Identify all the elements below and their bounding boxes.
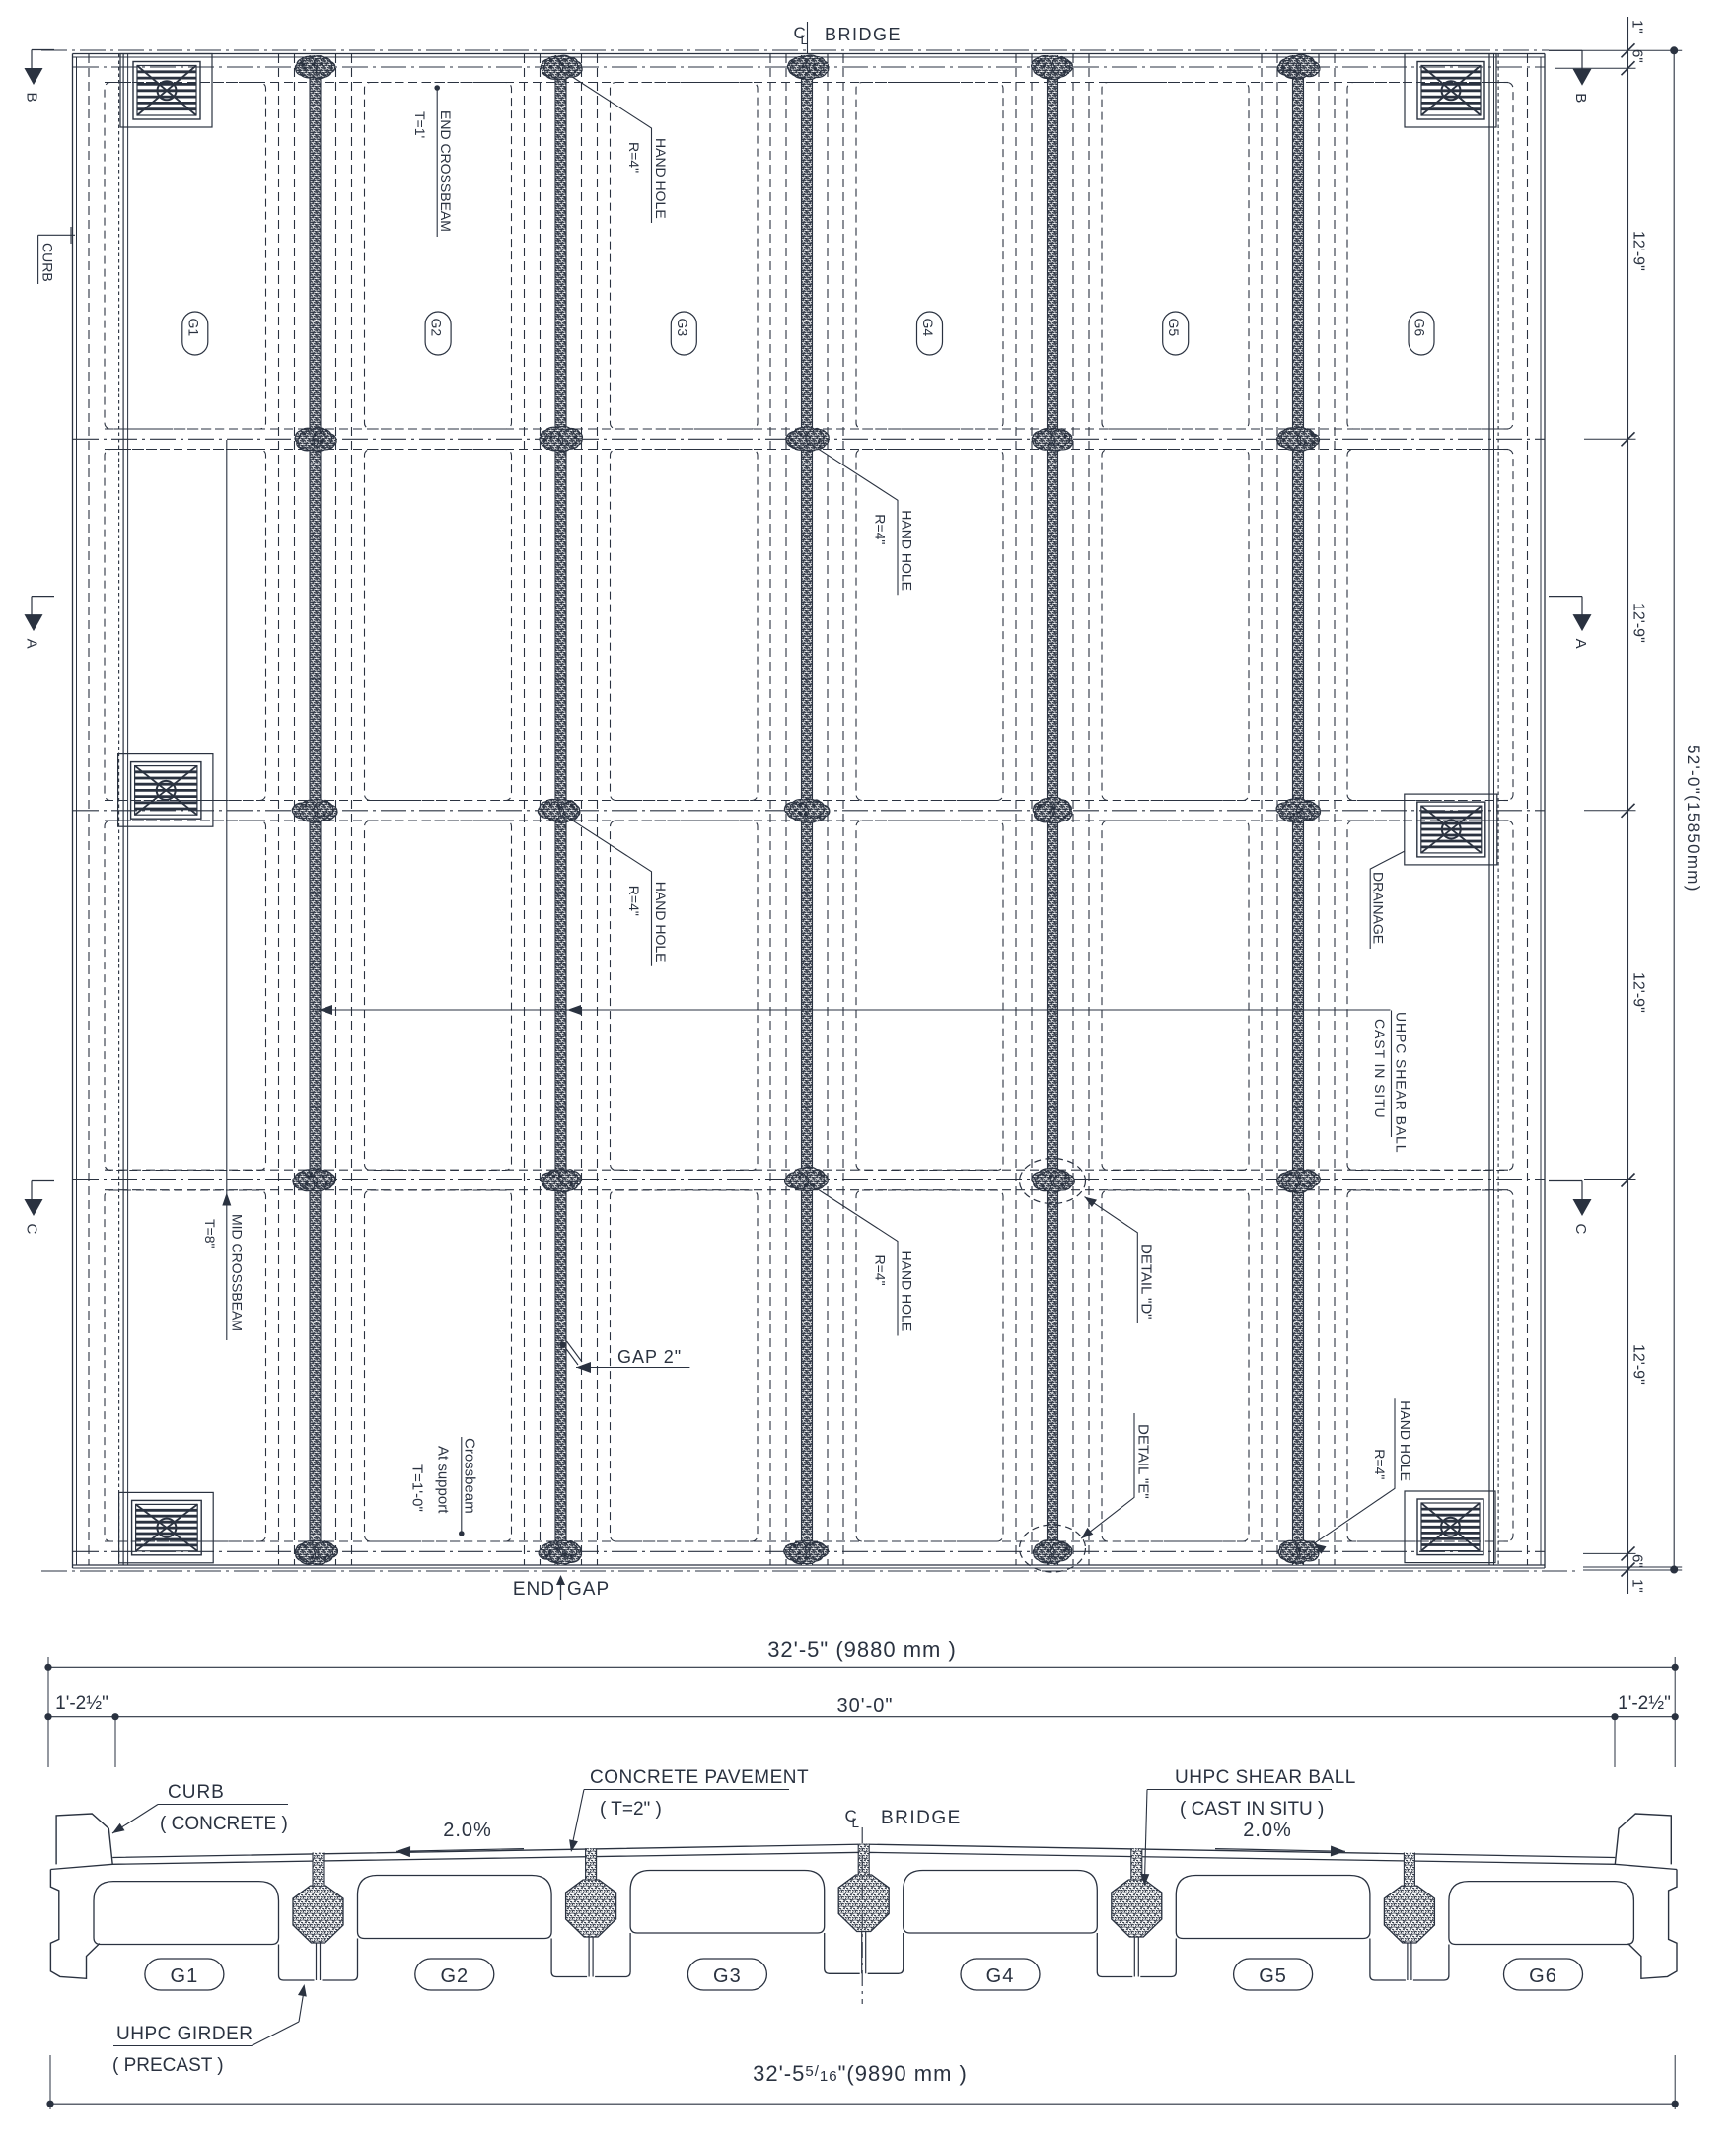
svg-text:1'-2½": 1'-2½" <box>55 1693 108 1714</box>
svg-text:B: B <box>1572 93 1589 103</box>
svg-text:2.0%: 2.0% <box>443 1820 492 1841</box>
svg-text:T=1'-0": T=1'-0" <box>409 1464 426 1512</box>
svg-text:52'-0"(15850mm): 52'-0"(15850mm) <box>1684 745 1702 893</box>
svg-text:( CONCRETE ): ( CONCRETE ) <box>160 1814 288 1834</box>
svg-text:R=4": R=4" <box>1372 1449 1388 1479</box>
svg-text:6": 6" <box>1629 1554 1646 1568</box>
svg-text:R=4": R=4" <box>873 514 889 544</box>
svg-text:A: A <box>1572 639 1589 649</box>
svg-text:( CAST IN SITU ): ( CAST IN SITU ) <box>1180 1799 1324 1820</box>
svg-text:T=1': T=1' <box>412 111 428 138</box>
svg-text:HAND HOLE: HAND HOLE <box>900 510 915 591</box>
svg-text:CURB: CURB <box>168 1782 225 1803</box>
svg-text:A: A <box>24 639 40 649</box>
svg-text:DETAIL "E": DETAIL "E" <box>1135 1424 1152 1499</box>
svg-text:( T=2" ): ( T=2" ) <box>600 1799 662 1820</box>
svg-text:C: C <box>1572 1224 1589 1235</box>
svg-text:CONCRETE PAVEMENT: CONCRETE PAVEMENT <box>590 1767 809 1788</box>
svg-text:( PRECAST ): ( PRECAST ) <box>112 2055 224 2076</box>
svg-text:30'-0": 30'-0" <box>837 1695 894 1717</box>
svg-text:L: L <box>801 33 809 47</box>
svg-text:B: B <box>24 93 40 103</box>
svg-text:1'-2½": 1'-2½" <box>1618 1693 1671 1714</box>
svg-text:Crossbeam: Crossbeam <box>462 1438 478 1514</box>
svg-text:R=4": R=4" <box>873 1255 889 1286</box>
svg-text:UHPC GIRDER: UHPC GIRDER <box>116 2024 253 2044</box>
svg-text:DRAINAGE: DRAINAGE <box>1371 872 1387 944</box>
svg-text:CURB: CURB <box>40 243 56 282</box>
svg-text:32'-55/16"(9890 mm ): 32'-55/16"(9890 mm ) <box>753 2061 968 2086</box>
svg-text:G6: G6 <box>1529 1965 1557 1987</box>
svg-text:T=8": T=8" <box>202 1219 218 1249</box>
svg-text:G3: G3 <box>713 1965 742 1987</box>
svg-text:G2: G2 <box>440 1965 469 1987</box>
svg-text:CAST IN SITU: CAST IN SITU <box>1372 1019 1388 1119</box>
svg-text:UHPC SHEAR BALL: UHPC SHEAR BALL <box>1394 1012 1410 1153</box>
svg-text:GAP: GAP <box>567 1579 610 1600</box>
svg-text:G5: G5 <box>1259 1965 1287 1987</box>
svg-text:G2: G2 <box>429 319 445 337</box>
svg-text:6": 6" <box>1629 49 1646 63</box>
svg-text:G1: G1 <box>171 1965 199 1987</box>
svg-text:END CROSSBEAM: END CROSSBEAM <box>438 110 454 232</box>
svg-text:BRIDGE: BRIDGE <box>881 1808 962 1828</box>
svg-text:MID CROSSBEAM: MID CROSSBEAM <box>230 1214 246 1331</box>
svg-text:C: C <box>24 1224 40 1235</box>
svg-text:12'-9": 12'-9" <box>1630 231 1647 271</box>
svg-text:1": 1" <box>1629 1579 1646 1593</box>
svg-text:R=4": R=4" <box>626 886 642 916</box>
svg-text:END: END <box>513 1579 555 1600</box>
svg-text:G1: G1 <box>185 319 201 337</box>
svg-text:12'-9": 12'-9" <box>1630 1344 1647 1385</box>
svg-text:UHPC SHEAR BALL: UHPC SHEAR BALL <box>1175 1767 1356 1788</box>
svg-text:GAP 2": GAP 2" <box>617 1347 682 1367</box>
svg-text:HAND HOLE: HAND HOLE <box>653 138 669 219</box>
svg-text:G3: G3 <box>675 319 690 337</box>
svg-text:HAND HOLE: HAND HOLE <box>900 1251 915 1332</box>
svg-text:BRIDGE: BRIDGE <box>825 25 902 44</box>
svg-text:2.0%: 2.0% <box>1243 1820 1292 1841</box>
svg-text:12'-9": 12'-9" <box>1630 603 1647 643</box>
svg-text:DETAIL "D": DETAIL "D" <box>1138 1244 1155 1320</box>
svg-text:G4: G4 <box>986 1965 1015 1987</box>
svg-text:HAND HOLE: HAND HOLE <box>1398 1400 1413 1481</box>
svg-text:HAND HOLE: HAND HOLE <box>653 882 669 963</box>
svg-text:1": 1" <box>1629 20 1646 34</box>
svg-text:At support: At support <box>435 1446 452 1514</box>
svg-text:R=4": R=4" <box>626 142 642 173</box>
svg-text:G5: G5 <box>1166 319 1182 337</box>
svg-text:L: L <box>852 1816 860 1830</box>
svg-text:G6: G6 <box>1412 319 1428 337</box>
svg-text:12'-9": 12'-9" <box>1630 972 1647 1013</box>
svg-text:32'-5" (9880 mm ): 32'-5" (9880 mm ) <box>767 1637 957 1662</box>
svg-text:G4: G4 <box>920 319 936 337</box>
